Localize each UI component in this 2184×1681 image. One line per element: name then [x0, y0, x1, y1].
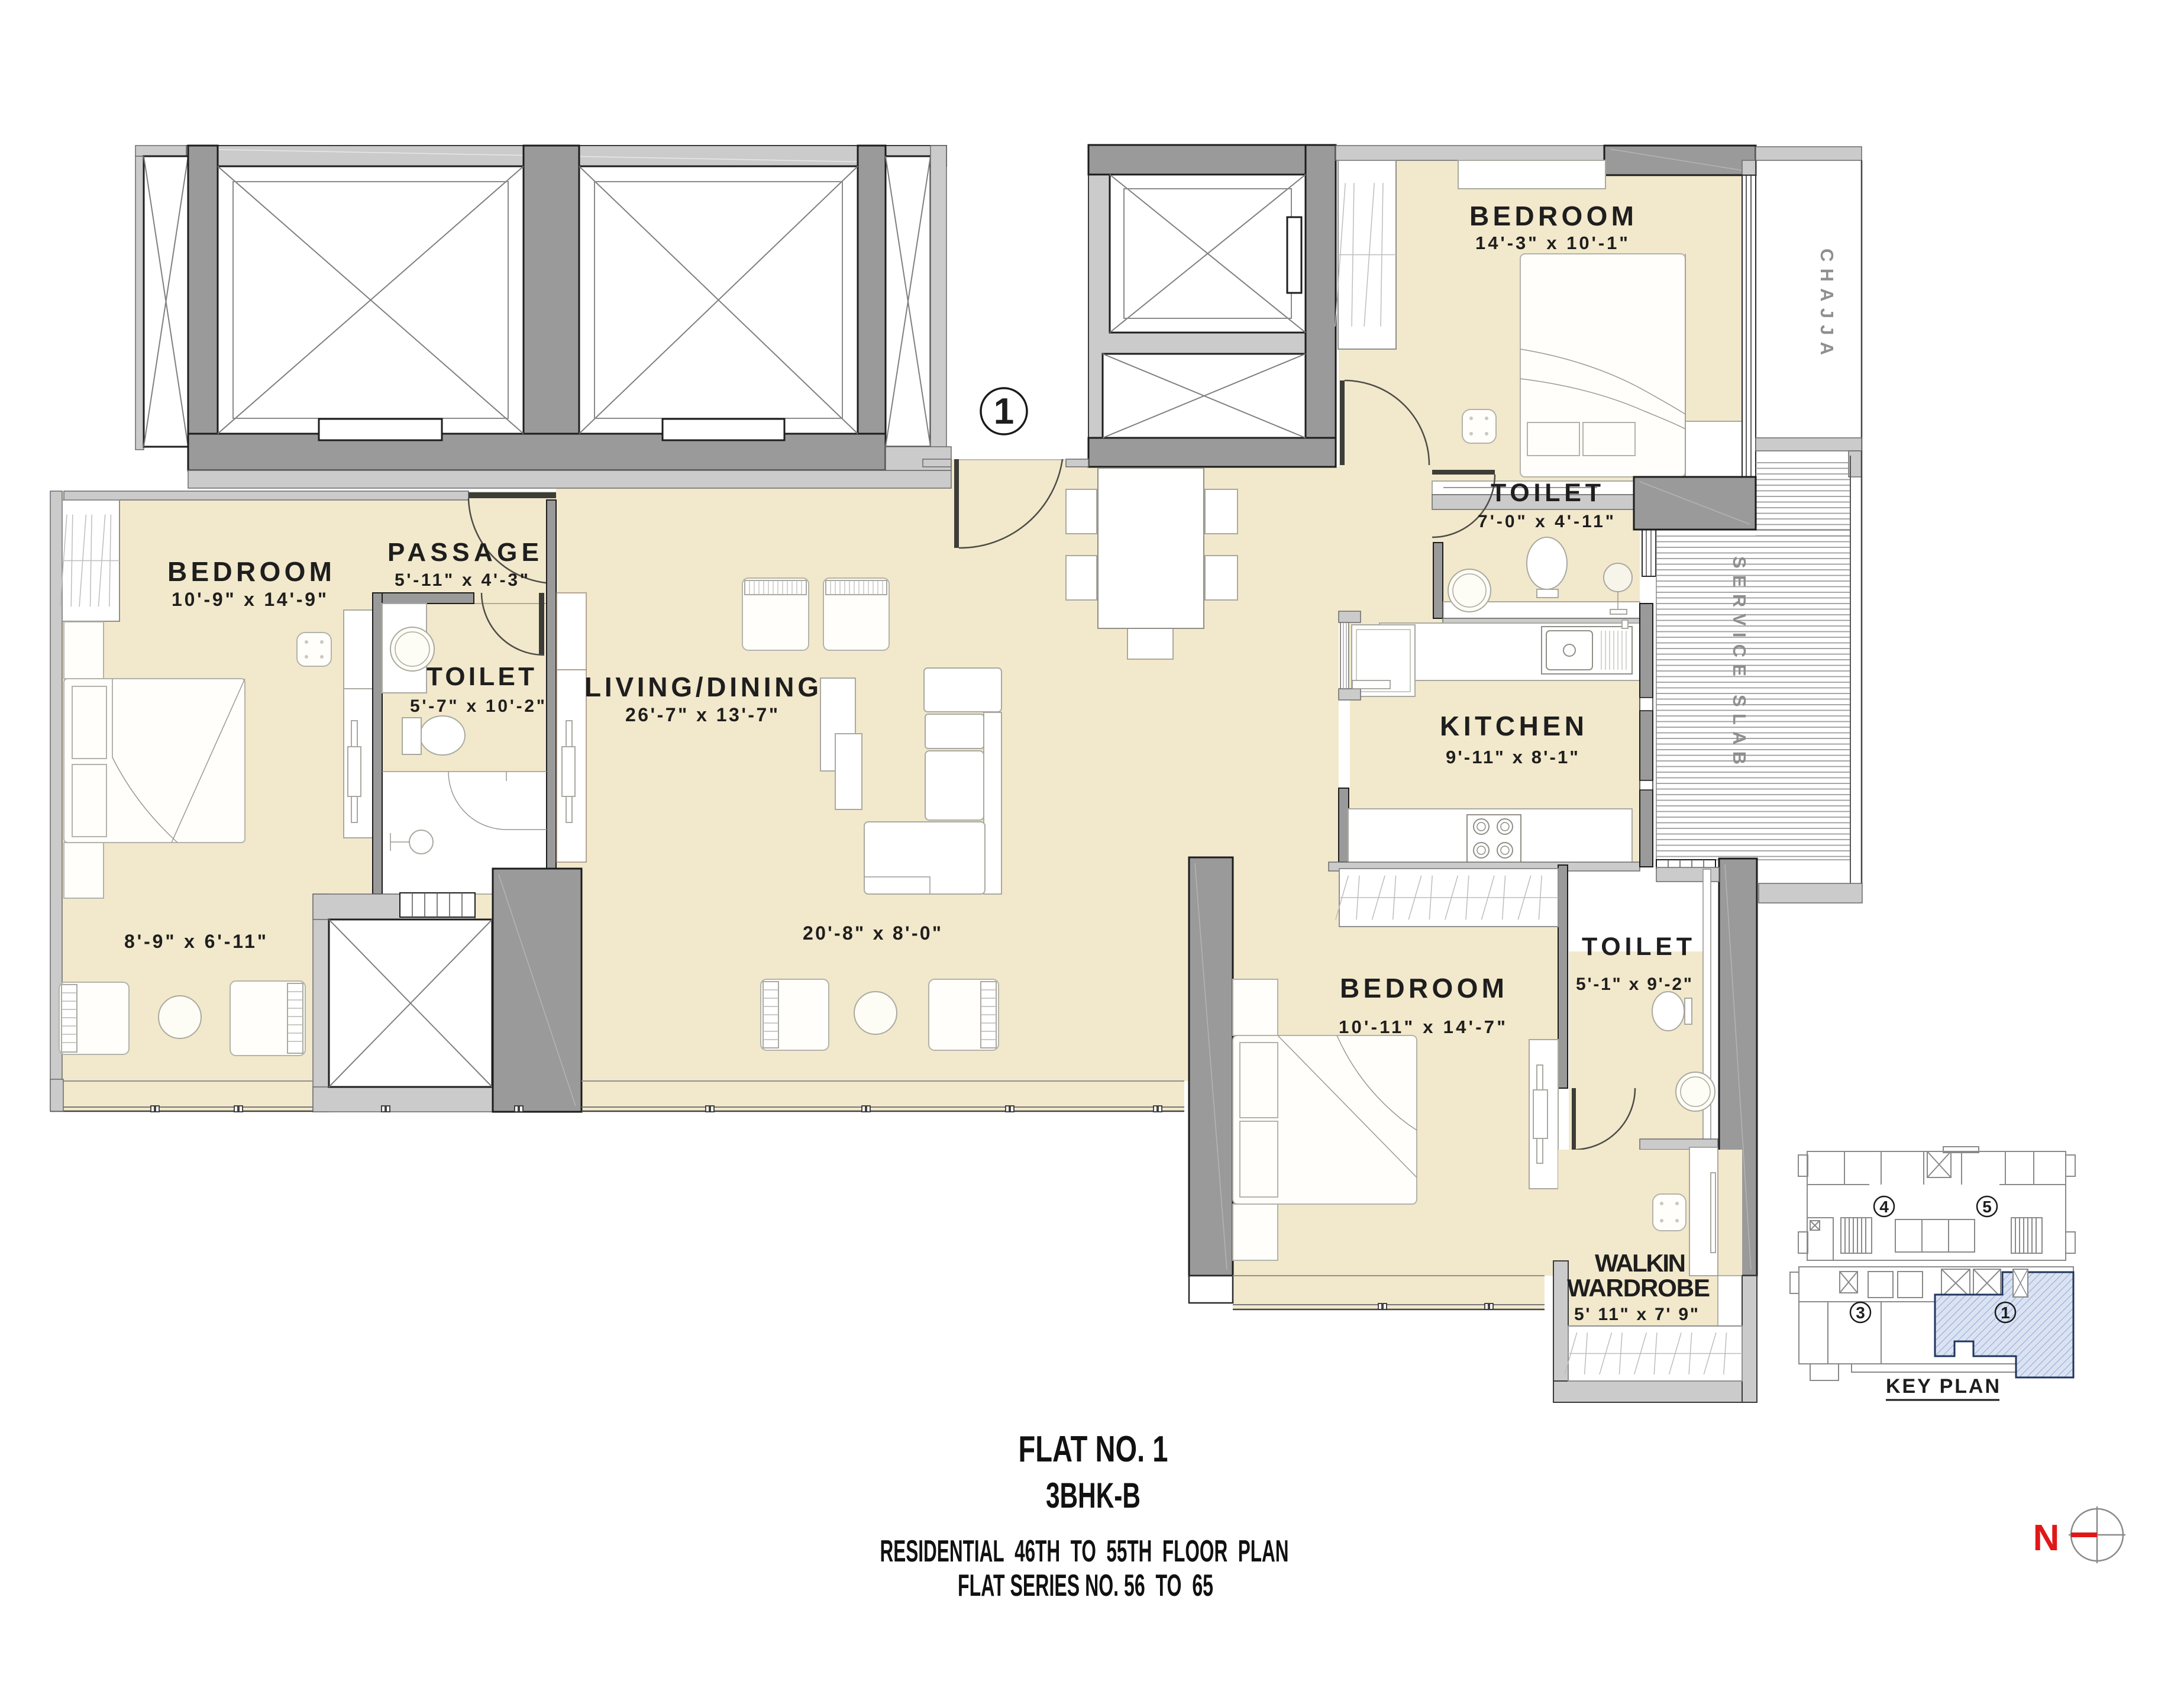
svg-text:3: 3 [1856, 1303, 1865, 1322]
svg-text:5: 5 [1982, 1198, 1992, 1216]
svg-text:RESIDENTIAL 46TH TO 55TH F: RESIDENTIAL 46TH TO 55TH FLOOR PLAN [880, 1534, 1289, 1569]
svg-text:LIVING/DINING: LIVING/DINING [584, 672, 819, 702]
svg-text:N: N [2033, 1518, 2060, 1559]
svg-text:FLAT NO. 1: FLAT NO. 1 [1019, 1429, 1168, 1470]
svg-text:FLAT SERIES NO. 56 TO 65: FLAT SERIES NO. 56 TO 65 [958, 1569, 1213, 1603]
svg-text:WALKIN: WALKIN [1595, 1249, 1686, 1277]
svg-text:KEY PLAN: KEY PLAN [1886, 1375, 1999, 1398]
svg-text:3BHK-B: 3BHK-B [1046, 1476, 1141, 1515]
svg-text:PASSAGE: PASSAGE [387, 538, 539, 567]
svg-text:9'-11" x 8'-1": 9'-11" x 8'-1" [1446, 747, 1578, 767]
svg-text:5' 11" x 7' 9": 5' 11" x 7' 9" [1574, 1305, 1698, 1324]
svg-text:1: 1 [994, 391, 1014, 432]
svg-text:5'-1" x 9'-2": 5'-1" x 9'-2" [1576, 975, 1692, 994]
svg-text:1: 1 [2001, 1303, 2010, 1322]
svg-text:4: 4 [1879, 1198, 1889, 1216]
svg-text:WARDROBE: WARDROBE [1567, 1274, 1710, 1302]
